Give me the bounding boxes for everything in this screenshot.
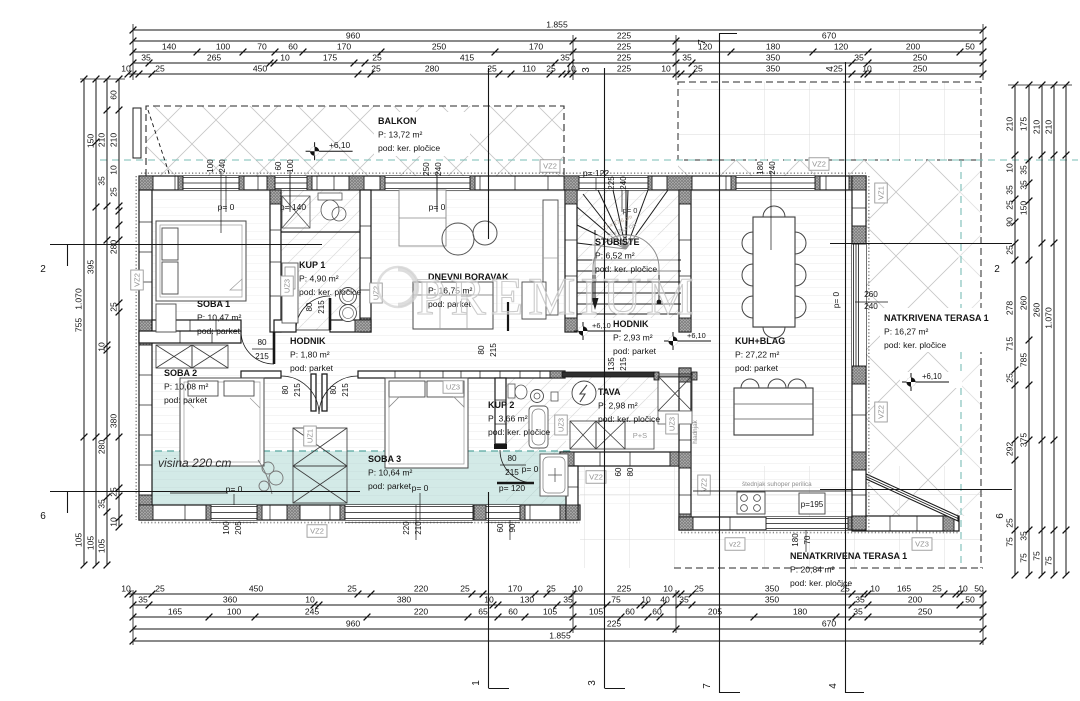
svg-text:180: 180 bbox=[766, 42, 781, 52]
svg-text:250: 250 bbox=[913, 53, 928, 63]
svg-text:35: 35 bbox=[1005, 185, 1015, 195]
svg-text:90: 90 bbox=[508, 523, 517, 532]
svg-text:260: 260 bbox=[1032, 303, 1042, 318]
svg-text:60: 60 bbox=[274, 161, 283, 170]
svg-text:10: 10 bbox=[566, 64, 576, 74]
svg-text:UZ1: UZ1 bbox=[306, 429, 315, 443]
svg-text:100: 100 bbox=[227, 607, 242, 617]
svg-text:140: 140 bbox=[162, 42, 177, 52]
svg-text:P: 10,08 m²: P: 10,08 m² bbox=[164, 382, 209, 392]
svg-text:pod: parket: pod: parket bbox=[290, 363, 334, 373]
svg-text:250: 250 bbox=[918, 607, 933, 617]
svg-text:p= 122: p= 122 bbox=[583, 168, 610, 178]
svg-text:P: 27,22 m²: P: 27,22 m² bbox=[735, 350, 780, 360]
svg-text:360: 360 bbox=[223, 595, 238, 605]
svg-text:240: 240 bbox=[768, 161, 777, 175]
svg-text:+6,10: +6,10 bbox=[329, 140, 351, 150]
svg-text:50: 50 bbox=[965, 595, 975, 605]
svg-text:10: 10 bbox=[280, 53, 290, 63]
svg-text:100: 100 bbox=[206, 159, 215, 173]
svg-text:240: 240 bbox=[864, 302, 878, 311]
svg-text:225: 225 bbox=[617, 64, 632, 74]
svg-text:SOBA 1: SOBA 1 bbox=[197, 299, 230, 309]
svg-text:hladnjak: hladnjak bbox=[692, 419, 699, 443]
svg-text:KUH+BLAG: KUH+BLAG bbox=[735, 336, 785, 346]
svg-text:VZ2: VZ2 bbox=[700, 478, 709, 492]
svg-text:10: 10 bbox=[109, 517, 119, 527]
svg-text:35: 35 bbox=[138, 595, 148, 605]
svg-text:6: 6 bbox=[40, 511, 46, 522]
svg-text:105: 105 bbox=[589, 607, 604, 617]
svg-text:25: 25 bbox=[109, 187, 119, 197]
svg-text:1.070: 1.070 bbox=[74, 288, 84, 310]
svg-text:210: 210 bbox=[1005, 117, 1015, 132]
svg-text:2: 2 bbox=[40, 264, 46, 275]
svg-text:P: 13,72 m²: P: 13,72 m² bbox=[378, 130, 423, 140]
svg-text:10: 10 bbox=[121, 584, 131, 594]
svg-text:25: 25 bbox=[833, 64, 843, 74]
svg-text:VZ2: VZ2 bbox=[543, 162, 557, 171]
svg-text:215: 215 bbox=[505, 468, 519, 477]
svg-text:380: 380 bbox=[109, 414, 119, 429]
svg-text:450: 450 bbox=[253, 64, 268, 74]
svg-text:35: 35 bbox=[855, 595, 865, 605]
svg-text:25: 25 bbox=[840, 584, 850, 594]
svg-text:10: 10 bbox=[305, 595, 315, 605]
svg-text:165: 165 bbox=[168, 607, 183, 617]
svg-text:pod: ker. pločice: pod: ker. pločice bbox=[884, 340, 946, 350]
svg-text:60: 60 bbox=[496, 523, 505, 532]
svg-text:450: 450 bbox=[249, 584, 264, 594]
svg-text:210: 210 bbox=[97, 133, 107, 148]
svg-text:220: 220 bbox=[414, 607, 429, 617]
svg-text:25: 25 bbox=[932, 584, 942, 594]
svg-text:25: 25 bbox=[347, 584, 357, 594]
svg-text:HODNIK: HODNIK bbox=[290, 336, 326, 346]
svg-text:280: 280 bbox=[109, 240, 119, 255]
svg-text:25: 25 bbox=[487, 64, 497, 74]
svg-text:175: 175 bbox=[1019, 117, 1029, 132]
svg-text:150: 150 bbox=[86, 134, 96, 149]
svg-text:80: 80 bbox=[281, 385, 290, 394]
svg-text:PREMIUM: PREMIUM bbox=[416, 268, 698, 326]
svg-text:225: 225 bbox=[607, 176, 616, 190]
svg-text:245: 245 bbox=[305, 607, 320, 617]
svg-text:p= 0: p= 0 bbox=[832, 291, 841, 308]
svg-text:pod: parket: pod: parket bbox=[613, 346, 657, 356]
svg-text:75: 75 bbox=[1032, 551, 1042, 561]
svg-text:1.855: 1.855 bbox=[546, 20, 568, 30]
svg-text:P: 4,90 m²: P: 4,90 m² bbox=[299, 274, 339, 284]
svg-text:180: 180 bbox=[756, 161, 765, 175]
svg-text:65: 65 bbox=[478, 607, 488, 617]
svg-text:210: 210 bbox=[109, 133, 119, 148]
svg-text:35: 35 bbox=[854, 53, 864, 63]
svg-text:120: 120 bbox=[698, 42, 713, 52]
svg-text:105: 105 bbox=[543, 607, 558, 617]
svg-text:p= 140: p= 140 bbox=[280, 202, 307, 212]
svg-text:35: 35 bbox=[97, 176, 107, 186]
svg-text:P: 2,93 m²: P: 2,93 m² bbox=[613, 333, 653, 343]
svg-text:265: 265 bbox=[207, 53, 222, 63]
svg-text:35: 35 bbox=[563, 595, 573, 605]
svg-text:2: 2 bbox=[994, 264, 1000, 275]
svg-text:p=195: p=195 bbox=[801, 500, 824, 509]
svg-text:25: 25 bbox=[1005, 373, 1015, 383]
svg-text:25: 25 bbox=[109, 302, 119, 312]
svg-text:75: 75 bbox=[1019, 553, 1029, 563]
svg-text:pod: parket: pod: parket bbox=[735, 363, 779, 373]
svg-text:25: 25 bbox=[372, 53, 382, 63]
svg-text:50: 50 bbox=[974, 584, 984, 594]
svg-text:25: 25 bbox=[546, 584, 556, 594]
svg-text:350: 350 bbox=[766, 53, 781, 63]
svg-text:205: 205 bbox=[708, 607, 723, 617]
svg-text:UZ3: UZ3 bbox=[283, 279, 292, 293]
svg-text:165: 165 bbox=[897, 584, 912, 594]
svg-text:80: 80 bbox=[305, 302, 314, 311]
svg-text:VZ2: VZ2 bbox=[877, 405, 886, 419]
svg-text:VZ2: VZ2 bbox=[310, 527, 324, 536]
svg-text:35: 35 bbox=[560, 53, 570, 63]
svg-text:350: 350 bbox=[765, 595, 780, 605]
svg-text:260: 260 bbox=[1019, 296, 1029, 311]
svg-text:10: 10 bbox=[484, 595, 494, 605]
svg-text:p= 0: p= 0 bbox=[412, 483, 429, 493]
svg-text:215: 215 bbox=[619, 357, 628, 371]
svg-text:UZ3: UZ3 bbox=[446, 383, 460, 392]
svg-text:110: 110 bbox=[522, 64, 536, 74]
svg-text:10: 10 bbox=[1005, 163, 1015, 173]
svg-text:225: 225 bbox=[617, 42, 632, 52]
svg-text:80: 80 bbox=[477, 345, 486, 355]
svg-text:210: 210 bbox=[1032, 120, 1042, 135]
svg-text:105: 105 bbox=[97, 539, 107, 554]
svg-text:UZ3: UZ3 bbox=[557, 418, 566, 432]
svg-text:80: 80 bbox=[329, 385, 338, 394]
svg-text:+6,10: +6,10 bbox=[922, 372, 942, 381]
svg-text:260: 260 bbox=[864, 290, 878, 299]
svg-text:10: 10 bbox=[661, 64, 671, 74]
svg-text:25: 25 bbox=[1005, 245, 1015, 255]
svg-text:250: 250 bbox=[913, 64, 928, 74]
svg-text:80: 80 bbox=[626, 467, 635, 476]
svg-text:25: 25 bbox=[1005, 200, 1015, 210]
svg-text:p= 0: p= 0 bbox=[623, 206, 638, 215]
svg-text:75: 75 bbox=[611, 595, 621, 605]
svg-text:10: 10 bbox=[97, 342, 107, 352]
svg-text:215: 215 bbox=[341, 383, 350, 397]
svg-text:960: 960 bbox=[346, 619, 361, 629]
svg-text:175: 175 bbox=[323, 53, 338, 63]
svg-text:4: 4 bbox=[828, 683, 839, 689]
svg-text:P: 3,66 m²: P: 3,66 m² bbox=[488, 414, 528, 424]
svg-text:60: 60 bbox=[652, 607, 662, 617]
svg-text:60: 60 bbox=[614, 467, 623, 476]
svg-text:25: 25 bbox=[546, 64, 556, 74]
svg-text:25: 25 bbox=[460, 584, 470, 594]
svg-text:pod: parket: pod: parket bbox=[368, 481, 412, 491]
svg-text:280: 280 bbox=[425, 64, 440, 74]
svg-text:7: 7 bbox=[702, 683, 713, 689]
svg-text:10: 10 bbox=[870, 584, 880, 594]
svg-text:75: 75 bbox=[1044, 556, 1054, 566]
svg-text:280: 280 bbox=[97, 440, 107, 455]
svg-text:715: 715 bbox=[1005, 337, 1015, 352]
svg-text:vz2: vz2 bbox=[729, 540, 741, 549]
svg-text:3: 3 bbox=[587, 680, 598, 686]
svg-text:10: 10 bbox=[958, 584, 968, 594]
svg-text:35: 35 bbox=[1019, 165, 1029, 175]
svg-text:VZ1: VZ1 bbox=[877, 186, 886, 200]
svg-text:pod: ker. pločice: pod: ker. pločice bbox=[598, 414, 660, 424]
svg-text:240: 240 bbox=[619, 176, 628, 190]
svg-text:35: 35 bbox=[1019, 531, 1029, 541]
svg-text:80: 80 bbox=[507, 454, 517, 463]
svg-text:105: 105 bbox=[86, 536, 96, 551]
svg-text:25: 25 bbox=[109, 487, 119, 497]
svg-text:225: 225 bbox=[607, 619, 622, 629]
svg-text:1.855: 1.855 bbox=[549, 631, 571, 641]
svg-text:292: 292 bbox=[1005, 442, 1015, 457]
svg-text:SOBA 3: SOBA 3 bbox=[368, 454, 401, 464]
svg-text:120: 120 bbox=[834, 42, 849, 52]
svg-text:pod: ker. pločice: pod: ker. pločice bbox=[488, 427, 550, 437]
svg-text:P+S: P+S bbox=[633, 431, 647, 440]
svg-text:P: 6,52 m²: P: 6,52 m² bbox=[595, 251, 635, 261]
svg-text:p= 120: p= 120 bbox=[499, 483, 526, 493]
svg-text:pod: parket: pod: parket bbox=[164, 395, 208, 405]
svg-text:200: 200 bbox=[906, 42, 921, 52]
svg-text:960: 960 bbox=[346, 31, 361, 41]
svg-text:25: 25 bbox=[155, 64, 165, 74]
svg-text:1.070: 1.070 bbox=[1044, 307, 1054, 329]
svg-text:70: 70 bbox=[257, 42, 267, 52]
svg-text:100: 100 bbox=[216, 42, 231, 52]
svg-text:3: 3 bbox=[581, 67, 592, 73]
svg-text:180: 180 bbox=[791, 533, 800, 547]
svg-text:VZ2: VZ2 bbox=[589, 473, 603, 482]
svg-text:75: 75 bbox=[1005, 537, 1015, 547]
svg-text:P: 10,64 m²: P: 10,64 m² bbox=[368, 468, 413, 478]
svg-text:170: 170 bbox=[508, 584, 523, 594]
svg-text:10: 10 bbox=[663, 584, 673, 594]
svg-text:200: 200 bbox=[908, 595, 923, 605]
svg-text:220: 220 bbox=[414, 584, 429, 594]
svg-text:STUBIŠTE: STUBIŠTE bbox=[595, 236, 640, 247]
svg-text:170: 170 bbox=[337, 42, 352, 52]
svg-text:UZ3: UZ3 bbox=[668, 417, 677, 431]
svg-text:250: 250 bbox=[432, 42, 447, 52]
svg-text:VZ3: VZ3 bbox=[915, 540, 929, 549]
svg-text:NENATKRIVENA TERASA 1: NENATKRIVENA TERASA 1 bbox=[790, 551, 907, 561]
svg-text:150: 150 bbox=[1019, 201, 1029, 216]
svg-text:10: 10 bbox=[573, 584, 583, 594]
svg-text:105: 105 bbox=[74, 533, 84, 548]
svg-text:225: 225 bbox=[617, 53, 632, 63]
svg-text:25: 25 bbox=[1005, 518, 1015, 528]
svg-text:10: 10 bbox=[862, 64, 872, 74]
svg-text:135: 135 bbox=[607, 357, 616, 371]
svg-text:240: 240 bbox=[218, 159, 227, 173]
svg-text:70: 70 bbox=[803, 535, 812, 544]
svg-text:60: 60 bbox=[109, 90, 119, 100]
svg-text:80: 80 bbox=[257, 338, 267, 347]
svg-text:210: 210 bbox=[414, 521, 423, 535]
svg-text:205: 205 bbox=[234, 521, 243, 535]
svg-text:35: 35 bbox=[682, 53, 692, 63]
svg-text:6: 6 bbox=[995, 513, 1006, 519]
svg-text:225: 225 bbox=[617, 584, 632, 594]
svg-text:415: 415 bbox=[460, 53, 475, 63]
svg-text:240: 240 bbox=[434, 162, 443, 176]
svg-text:215: 215 bbox=[255, 352, 269, 361]
svg-text:SOBA 2: SOBA 2 bbox=[164, 368, 197, 378]
svg-text:NATKRIVENA TERASA 1: NATKRIVENA TERASA 1 bbox=[884, 313, 989, 323]
svg-text:35: 35 bbox=[1019, 180, 1029, 190]
svg-text:P: 16,27 m²: P: 16,27 m² bbox=[884, 327, 929, 337]
svg-text:395: 395 bbox=[86, 260, 96, 275]
svg-text:25: 25 bbox=[371, 64, 381, 74]
svg-text:350: 350 bbox=[765, 584, 780, 594]
svg-text:210: 210 bbox=[1044, 120, 1054, 135]
svg-text:1: 1 bbox=[471, 680, 482, 686]
svg-text:35: 35 bbox=[853, 607, 863, 617]
svg-text:375: 375 bbox=[1019, 433, 1029, 448]
svg-text:755: 755 bbox=[74, 318, 84, 333]
svg-text:KUP 1: KUP 1 bbox=[299, 260, 325, 270]
svg-text:50: 50 bbox=[965, 42, 975, 52]
svg-text:P: 20,84 m²: P: 20,84 m² bbox=[790, 565, 835, 575]
svg-text:215: 215 bbox=[317, 300, 326, 314]
svg-text:35: 35 bbox=[97, 499, 107, 509]
svg-text:250: 250 bbox=[422, 162, 431, 176]
svg-text:P: 10,47 m²: P: 10,47 m² bbox=[197, 313, 242, 323]
svg-text:35: 35 bbox=[141, 53, 151, 63]
svg-text:60: 60 bbox=[288, 42, 298, 52]
svg-text:670: 670 bbox=[822, 31, 837, 41]
svg-text:VZ2: VZ2 bbox=[133, 273, 142, 287]
svg-text:pod: parket: pod: parket bbox=[197, 326, 241, 336]
svg-text:785: 785 bbox=[1019, 353, 1029, 368]
svg-text:+6,10: +6,10 bbox=[687, 331, 706, 340]
svg-text:225: 225 bbox=[617, 31, 632, 41]
svg-text:BALKON: BALKON bbox=[378, 116, 417, 126]
svg-text:TAVA: TAVA bbox=[598, 387, 621, 397]
svg-text:60: 60 bbox=[625, 607, 635, 617]
svg-text:40: 40 bbox=[660, 595, 670, 605]
svg-text:220: 220 bbox=[402, 521, 411, 535]
svg-text:10: 10 bbox=[109, 165, 119, 175]
svg-text:380: 380 bbox=[397, 595, 412, 605]
svg-text:130: 130 bbox=[520, 595, 535, 605]
svg-text:pod: ker. pločice: pod: ker. pločice bbox=[378, 143, 440, 153]
svg-text:180: 180 bbox=[793, 607, 808, 617]
svg-text:P: 1,80 m²: P: 1,80 m² bbox=[290, 350, 330, 360]
svg-text:10: 10 bbox=[641, 595, 651, 605]
svg-text:25: 25 bbox=[694, 584, 704, 594]
svg-text:VZ2: VZ2 bbox=[812, 160, 826, 169]
svg-text:pod: ker. pločice: pod: ker. pločice bbox=[299, 287, 361, 297]
svg-text:60: 60 bbox=[508, 607, 518, 617]
svg-text:100: 100 bbox=[286, 159, 295, 173]
svg-text:90: 90 bbox=[1005, 217, 1015, 227]
svg-text:170: 170 bbox=[529, 42, 544, 52]
svg-text:10: 10 bbox=[121, 64, 131, 74]
svg-text:350: 350 bbox=[766, 64, 781, 74]
svg-text:visina 220 cm: visina 220 cm bbox=[158, 456, 231, 470]
svg-text:KUP 2: KUP 2 bbox=[488, 400, 514, 410]
svg-text:278: 278 bbox=[1005, 301, 1015, 316]
svg-text:670: 670 bbox=[822, 619, 837, 629]
svg-text:35: 35 bbox=[679, 595, 689, 605]
svg-text:25: 25 bbox=[693, 64, 703, 74]
svg-text:p= 0: p= 0 bbox=[226, 484, 243, 494]
svg-text:215: 215 bbox=[489, 343, 498, 357]
svg-text:p= 0: p= 0 bbox=[522, 464, 539, 474]
svg-text:215: 215 bbox=[293, 383, 302, 397]
svg-text:štednjak suhoper perilica: štednjak suhoper perilica bbox=[742, 481, 812, 488]
svg-text:100: 100 bbox=[222, 521, 231, 535]
svg-text:25: 25 bbox=[155, 584, 165, 594]
